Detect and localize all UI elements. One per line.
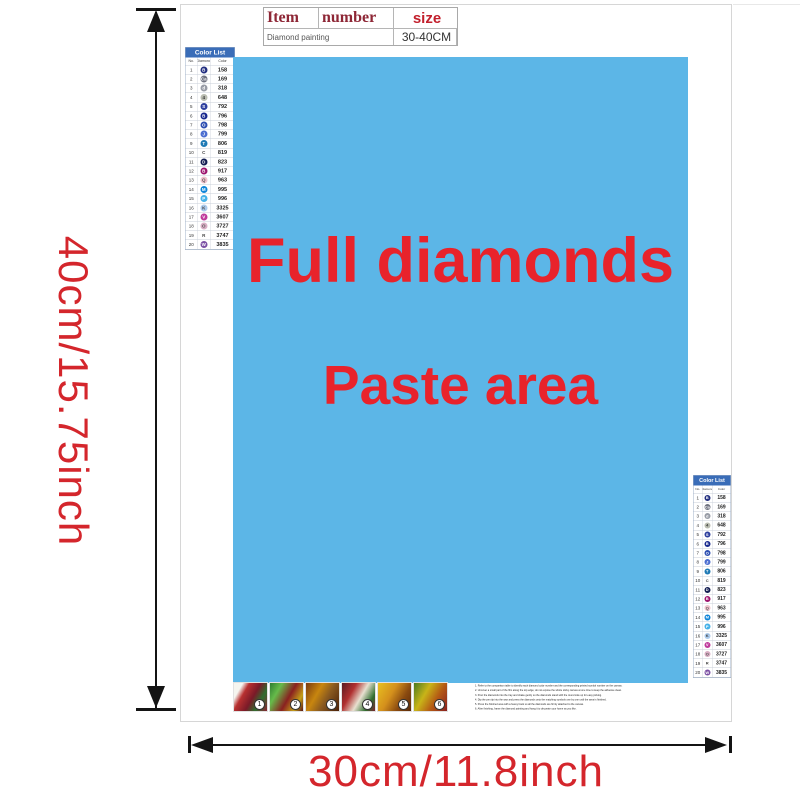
row-number: 13 bbox=[186, 176, 198, 185]
dmc-color-code: 3607 bbox=[713, 642, 731, 648]
diamond-symbol-cell: S bbox=[703, 530, 713, 539]
diamond-symbol-icon: B bbox=[200, 167, 207, 174]
dmc-color-code: 996 bbox=[211, 196, 235, 202]
color-list-row: 6 B 796 bbox=[694, 539, 731, 548]
diamond-symbol-cell: K bbox=[198, 203, 211, 212]
dmc-color-code: 158 bbox=[211, 67, 235, 73]
step-number-badge: 5 bbox=[398, 699, 409, 710]
diamond-symbol-icon: V bbox=[200, 213, 207, 220]
diamond-symbol-cell: Ca bbox=[198, 75, 211, 84]
color-list-row: 5 S 792 bbox=[694, 530, 731, 539]
color-list-headers: No. Diamond Color bbox=[186, 58, 235, 66]
color-list-row: 14 M 995 bbox=[186, 185, 235, 194]
spec-col-size: size bbox=[394, 8, 457, 29]
row-number: 8 bbox=[186, 130, 198, 139]
color-list-row: 11 D 823 bbox=[694, 585, 731, 594]
dmc-color-code: 806 bbox=[211, 140, 235, 146]
diamond-symbol-icon: Q bbox=[200, 177, 207, 184]
row-number: 8 bbox=[694, 558, 703, 567]
diamond-symbol-icon: O bbox=[704, 651, 710, 657]
diamond-symbol-icon: B bbox=[704, 541, 710, 547]
color-list-row: 8 J 799 bbox=[186, 130, 235, 139]
diamond-symbol-cell: O bbox=[703, 650, 713, 659]
color-list-row: 8 J 799 bbox=[694, 558, 731, 567]
step-number-badge: 1 bbox=[254, 699, 265, 710]
diamond-symbol-icon: Ca bbox=[200, 76, 207, 83]
dmc-color-code: 819 bbox=[211, 150, 235, 156]
diamond-symbol-cell: C bbox=[703, 576, 713, 585]
spec-col-number: number bbox=[319, 8, 394, 29]
row-number: 20 bbox=[694, 668, 703, 677]
diamond-symbol-icon: P bbox=[200, 195, 207, 202]
row-number: 4 bbox=[694, 521, 703, 530]
diamond-symbol-icon: O bbox=[200, 122, 207, 129]
instruction-text-block: 1. Refer to the comparison table to iden… bbox=[475, 684, 719, 714]
row-number: 1 bbox=[694, 494, 703, 503]
photo-edge-line bbox=[733, 4, 800, 5]
col-diamond-header: Diamond bbox=[198, 58, 211, 66]
row-number: 5 bbox=[694, 530, 703, 539]
diamond-symbol-cell: B bbox=[703, 494, 713, 503]
color-list-row: 18 O 3727 bbox=[186, 222, 235, 231]
color-list-row: 15 P 996 bbox=[186, 194, 235, 203]
step-number-badge: 2 bbox=[290, 699, 301, 710]
row-number: 13 bbox=[694, 604, 703, 613]
color-list-row: 10 C 819 bbox=[694, 576, 731, 585]
diamond-symbol-cell: M bbox=[198, 185, 211, 194]
diamond-symbol-cell: B bbox=[198, 167, 211, 176]
diamond-symbol-cell: T bbox=[703, 567, 713, 576]
color-list-rows: 1 B 158 2 Ca 169 3 d bbox=[694, 494, 731, 678]
dmc-color-code: 318 bbox=[713, 513, 731, 519]
diamond-symbol-cell: B bbox=[703, 539, 713, 548]
diamond-symbol-icon: O bbox=[200, 223, 207, 230]
dmc-color-code: 3727 bbox=[713, 651, 731, 657]
row-number: 14 bbox=[694, 613, 703, 622]
dmc-color-code: 158 bbox=[713, 495, 731, 501]
col-no-header: No. bbox=[694, 486, 703, 494]
row-number: 11 bbox=[186, 157, 198, 166]
step-thumbnail-image: 6 bbox=[413, 682, 448, 712]
row-number: 9 bbox=[694, 567, 703, 576]
diamond-symbol-cell: D bbox=[703, 585, 713, 594]
diamond-symbol-icon: 4 bbox=[200, 94, 207, 101]
diamond-symbol-icon: J bbox=[704, 559, 710, 565]
diamond-symbol-icon: O bbox=[704, 550, 710, 556]
dmc-color-code: 169 bbox=[211, 76, 235, 82]
diamond-symbol-cell: T bbox=[198, 139, 211, 148]
row-number: 10 bbox=[186, 148, 198, 157]
diamond-symbol-icon: J bbox=[200, 131, 207, 138]
dmc-color-code: 796 bbox=[211, 113, 235, 119]
diamond-symbol-icon: W bbox=[704, 670, 710, 676]
diamond-symbol-cell: D bbox=[198, 157, 211, 166]
diamond-symbol-icon: D bbox=[704, 587, 710, 593]
diamond-symbol-icon: C bbox=[200, 149, 207, 156]
dmc-color-code: 917 bbox=[713, 596, 731, 602]
diamond-symbol-cell: W bbox=[198, 240, 211, 249]
diamond-symbol-icon: C bbox=[704, 578, 710, 584]
step-thumbnails: 1 2 3 4 5 6 bbox=[233, 682, 448, 712]
color-list-row: 10 C 819 bbox=[186, 148, 235, 157]
color-list-row: 6 B 796 bbox=[186, 111, 235, 120]
diamond-symbol-cell: K bbox=[703, 631, 713, 640]
color-list-row: 17 V 3607 bbox=[694, 641, 731, 650]
dmc-color-code: 3747 bbox=[713, 661, 731, 667]
spec-size-value: 30-40CM bbox=[394, 29, 457, 45]
color-list-row: 2 Ca 169 bbox=[694, 503, 731, 512]
diamond-symbol-cell: O bbox=[198, 121, 211, 130]
height-arrow-bottom-cap bbox=[136, 708, 176, 711]
color-list-row: 16 K 3325 bbox=[694, 631, 731, 640]
step-thumbnail-image: 5 bbox=[377, 682, 412, 712]
color-list-row: 2 Ca 169 bbox=[186, 75, 235, 84]
color-list-row: 3 d 318 bbox=[694, 512, 731, 521]
dmc-color-code: 3607 bbox=[211, 214, 235, 220]
diamond-symbol-icon: B bbox=[200, 66, 207, 73]
diamond-symbol-icon: S bbox=[704, 532, 710, 538]
width-dimension-line bbox=[196, 744, 724, 746]
color-list-right: Color List No. Diamond Color 1 B 158 bbox=[693, 475, 731, 677]
row-number: 16 bbox=[186, 203, 198, 212]
paste-area-title: Full diamonds bbox=[233, 225, 688, 297]
row-number: 3 bbox=[186, 84, 198, 93]
color-list-left: Color List No. Diamond Color 1 B 158 bbox=[185, 47, 235, 249]
step-thumbnail-image: 2 bbox=[269, 682, 304, 712]
diamond-symbol-icon: B bbox=[200, 112, 207, 119]
dmc-color-code: 823 bbox=[713, 587, 731, 593]
diamond-symbol-cell: R bbox=[198, 231, 211, 240]
row-number: 3 bbox=[694, 512, 703, 521]
diamond-symbol-icon: 4 bbox=[704, 522, 710, 528]
diamond-symbol-cell: 4 bbox=[198, 93, 211, 102]
row-number: 18 bbox=[186, 222, 198, 231]
diamond-symbol-icon: B bbox=[704, 495, 710, 501]
row-number: 2 bbox=[186, 75, 198, 84]
color-list-row: 20 W 3835 bbox=[694, 668, 731, 677]
row-number: 12 bbox=[186, 167, 198, 176]
row-number: 7 bbox=[186, 121, 198, 130]
dmc-color-code: 806 bbox=[713, 569, 731, 575]
row-number: 16 bbox=[694, 631, 703, 640]
col-color-header: Color bbox=[211, 60, 235, 64]
diamond-symbol-cell: Ca bbox=[703, 503, 713, 512]
spec-table: Item number size Diamond painting 30-40C… bbox=[263, 7, 458, 46]
diamond-symbol-cell: Q bbox=[703, 604, 713, 613]
dmc-color-code: 799 bbox=[713, 559, 731, 565]
row-number: 6 bbox=[694, 539, 703, 548]
color-list-row: 17 V 3607 bbox=[186, 213, 235, 222]
color-list-row: 4 4 648 bbox=[694, 521, 731, 530]
row-number: 11 bbox=[694, 585, 703, 594]
height-arrow-down-icon bbox=[147, 686, 165, 708]
dmc-color-code: 3727 bbox=[211, 223, 235, 229]
diamond-symbol-cell: M bbox=[703, 613, 713, 622]
row-number: 18 bbox=[694, 650, 703, 659]
dmc-color-code: 3325 bbox=[713, 633, 731, 639]
diamond-symbol-icon: S bbox=[200, 103, 207, 110]
row-number: 5 bbox=[186, 102, 198, 111]
dmc-color-code: 792 bbox=[211, 104, 235, 110]
diamond-symbol-icon: R bbox=[200, 232, 207, 239]
color-list-row: 19 R 3747 bbox=[694, 659, 731, 668]
diamond-symbol-icon: Q bbox=[704, 605, 710, 611]
color-list-rows: 1 B 158 2 Ca 169 3 d bbox=[186, 66, 235, 250]
color-list-row: 9 T 806 bbox=[186, 139, 235, 148]
row-number: 19 bbox=[186, 231, 198, 240]
row-number: 17 bbox=[694, 641, 703, 650]
dmc-color-code: 963 bbox=[211, 177, 235, 183]
color-list-title: Color List bbox=[186, 48, 235, 58]
row-number: 9 bbox=[186, 139, 198, 148]
dmc-color-code: 648 bbox=[713, 523, 731, 529]
diamond-symbol-cell: W bbox=[703, 668, 713, 677]
color-list-row: 7 O 798 bbox=[186, 121, 235, 130]
diamond-symbol-icon: K bbox=[200, 204, 207, 211]
color-list-row: 7 O 798 bbox=[694, 549, 731, 558]
diamond-painting-canvas: Item number size Diamond painting 30-40C… bbox=[180, 4, 732, 722]
width-arrow-right-cap bbox=[729, 736, 732, 753]
step-thumbnail-image: 4 bbox=[341, 682, 376, 712]
step-thumbnail-image: 1 bbox=[233, 682, 268, 712]
row-number: 19 bbox=[694, 659, 703, 668]
diamond-symbol-icon: B bbox=[704, 596, 710, 602]
diamond-symbol-icon: T bbox=[200, 140, 207, 147]
color-list-row: 5 S 792 bbox=[186, 102, 235, 111]
diamond-symbol-cell: B bbox=[198, 66, 211, 75]
dmc-color-code: 3835 bbox=[211, 242, 235, 248]
diamond-symbol-cell: B bbox=[198, 111, 211, 120]
diamond-symbol-cell: O bbox=[703, 549, 713, 558]
dmc-color-code: 823 bbox=[211, 159, 235, 165]
height-dimension-line bbox=[155, 12, 157, 708]
row-number: 6 bbox=[186, 111, 198, 120]
diamond-symbol-cell: d bbox=[198, 84, 211, 93]
diamond-symbol-cell: Q bbox=[198, 176, 211, 185]
dmc-color-code: 995 bbox=[713, 615, 731, 621]
step-thumbnail-image: 3 bbox=[305, 682, 340, 712]
color-list-row: 16 K 3325 bbox=[186, 203, 235, 212]
diamond-symbol-icon: V bbox=[704, 642, 710, 648]
dmc-color-code: 3325 bbox=[211, 205, 235, 211]
row-number: 15 bbox=[186, 194, 198, 203]
color-list-row: 9 T 806 bbox=[694, 567, 731, 576]
color-list-row: 3 d 318 bbox=[186, 84, 235, 93]
diamond-symbol-cell: J bbox=[703, 558, 713, 567]
dmc-color-code: 796 bbox=[713, 541, 731, 547]
dmc-color-code: 996 bbox=[713, 624, 731, 630]
color-list-title: Color List bbox=[694, 476, 731, 486]
diamond-symbol-cell: B bbox=[703, 595, 713, 604]
diamond-symbol-icon: d bbox=[704, 513, 710, 519]
diamond-symbol-cell: P bbox=[198, 194, 211, 203]
spec-product-name: Diamond painting bbox=[264, 29, 394, 45]
color-list-row: 13 Q 963 bbox=[186, 176, 235, 185]
instruction-line: 6. After finishing, frame the diamond pa… bbox=[475, 707, 719, 712]
dmc-color-code: 792 bbox=[713, 532, 731, 538]
dmc-color-code: 963 bbox=[713, 605, 731, 611]
diamond-symbol-cell: R bbox=[703, 659, 713, 668]
row-number: 7 bbox=[694, 549, 703, 558]
dmc-color-code: 3747 bbox=[211, 232, 235, 238]
height-dimension-label: 40cm/15.75inch bbox=[53, 211, 97, 571]
diamond-symbol-icon: R bbox=[704, 660, 710, 666]
row-number: 17 bbox=[186, 213, 198, 222]
color-list-row: 20 W 3835 bbox=[186, 240, 235, 249]
diamond-symbol-icon: M bbox=[704, 614, 710, 620]
color-list-row: 1 B 158 bbox=[186, 66, 235, 75]
row-number: 10 bbox=[694, 576, 703, 585]
step-number-badge: 3 bbox=[326, 699, 337, 710]
diamond-symbol-icon: d bbox=[200, 85, 207, 92]
color-list-headers: No. Diamond Color bbox=[694, 486, 731, 494]
dmc-color-code: 995 bbox=[211, 186, 235, 192]
color-list-row: 12 B 917 bbox=[186, 167, 235, 176]
dmc-color-code: 3835 bbox=[713, 670, 731, 676]
dmc-color-code: 799 bbox=[211, 131, 235, 137]
dmc-color-code: 798 bbox=[211, 122, 235, 128]
dmc-color-code: 318 bbox=[211, 85, 235, 91]
dmc-color-code: 917 bbox=[211, 168, 235, 174]
paste-area-subtitle: Paste area bbox=[233, 353, 688, 417]
color-list-row: 13 Q 963 bbox=[694, 604, 731, 613]
diamond-symbol-cell: S bbox=[198, 102, 211, 111]
diamond-symbol-cell: V bbox=[198, 213, 211, 222]
row-number: 1 bbox=[186, 66, 198, 75]
diamond-symbol-cell: V bbox=[703, 641, 713, 650]
row-number: 15 bbox=[694, 622, 703, 631]
color-list-row: 15 P 996 bbox=[694, 622, 731, 631]
color-list-row: 4 4 648 bbox=[186, 93, 235, 102]
color-list-row: 14 M 995 bbox=[694, 613, 731, 622]
diamond-symbol-icon: K bbox=[704, 633, 710, 639]
row-number: 4 bbox=[186, 93, 198, 102]
dmc-color-code: 648 bbox=[211, 94, 235, 100]
row-number: 14 bbox=[186, 185, 198, 194]
diamond-symbol-icon: W bbox=[200, 241, 207, 248]
color-list-row: 19 R 3747 bbox=[186, 231, 235, 240]
row-number: 20 bbox=[186, 240, 198, 249]
color-list-row: 12 B 917 bbox=[694, 595, 731, 604]
width-dimension-label: 30cm/11.8inch bbox=[256, 747, 656, 797]
diamond-symbol-icon: M bbox=[200, 186, 207, 193]
diamond-symbol-cell: P bbox=[703, 622, 713, 631]
diamond-symbol-icon: P bbox=[704, 624, 710, 630]
diamond-symbol-cell: J bbox=[198, 130, 211, 139]
paste-area: Full diamonds Paste area bbox=[233, 57, 688, 683]
product-size-diagram: 40cm/15.75inch 30cm/11.8inch Item number… bbox=[0, 0, 800, 800]
col-diamond-header: Diamond bbox=[703, 486, 713, 494]
diamond-symbol-cell: O bbox=[198, 222, 211, 231]
width-arrow-right-icon bbox=[705, 737, 727, 753]
row-number: 2 bbox=[694, 503, 703, 512]
diamond-symbol-icon: T bbox=[704, 568, 710, 574]
row-number: 12 bbox=[694, 595, 703, 604]
dmc-color-code: 798 bbox=[713, 550, 731, 556]
diamond-symbol-cell: 4 bbox=[703, 521, 713, 530]
diamond-symbol-icon: D bbox=[200, 158, 207, 165]
diamond-symbol-cell: d bbox=[703, 512, 713, 521]
color-list-row: 1 B 158 bbox=[694, 494, 731, 503]
dmc-color-code: 169 bbox=[713, 504, 731, 510]
col-color-header: Color bbox=[713, 488, 731, 491]
color-list-row: 18 O 3727 bbox=[694, 650, 731, 659]
step-number-badge: 6 bbox=[434, 699, 445, 710]
diamond-symbol-cell: C bbox=[198, 148, 211, 157]
dmc-color-code: 819 bbox=[713, 578, 731, 584]
spec-col-item: Item bbox=[264, 8, 319, 29]
step-number-badge: 4 bbox=[362, 699, 373, 710]
diamond-symbol-icon: Ca bbox=[704, 504, 710, 510]
col-no-header: No. bbox=[186, 58, 198, 66]
color-list-row: 11 D 823 bbox=[186, 157, 235, 166]
